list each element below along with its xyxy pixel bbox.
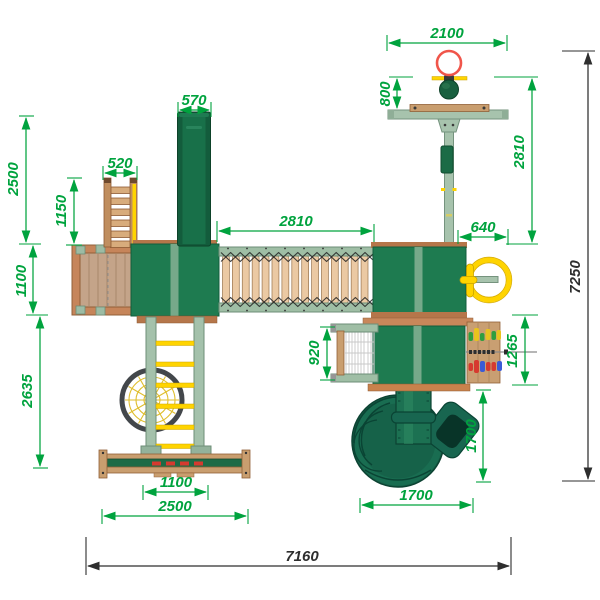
left-tower-roof bbox=[131, 240, 219, 323]
dim-bridge-span: 2810 bbox=[278, 213, 313, 230]
dim-net-span: 920 bbox=[306, 340, 323, 366]
climbing-net bbox=[331, 324, 378, 382]
upper-right-tower-roof bbox=[363, 242, 473, 326]
access-stairs bbox=[104, 178, 137, 248]
lower-right-tower-roof bbox=[373, 326, 465, 387]
beam-plank bbox=[410, 105, 489, 112]
lower-tower-floor-strip bbox=[368, 384, 470, 391]
dim-hoop-offset: 800 bbox=[377, 81, 394, 107]
dim-base-span: 2500 bbox=[157, 498, 192, 515]
dim-spiral-span-v: 1700 bbox=[463, 419, 480, 453]
stairs-handrail bbox=[133, 184, 137, 244]
dim-left-span-upper: 2500 bbox=[5, 162, 22, 197]
hoop-knob bbox=[440, 80, 459, 99]
dim-overall-width: 7160 bbox=[285, 548, 319, 565]
pole bbox=[445, 115, 454, 245]
dim-overall-height: 7250 bbox=[567, 260, 584, 294]
dim-deck-span: 1100 bbox=[13, 264, 30, 297]
straight-slide bbox=[178, 112, 211, 246]
dim-panel-span: 1265 bbox=[504, 334, 521, 368]
dim-swing-span: 2635 bbox=[19, 374, 36, 409]
dim-stairs-span: 1150 bbox=[53, 194, 70, 227]
plan-svg: 570 520 2100 800 2810 640 2810 2500 1100 bbox=[0, 0, 600, 600]
dim-spiral-span-h: 1700 bbox=[399, 487, 433, 504]
hoop-ring bbox=[437, 51, 461, 75]
dim-pole-span: 2810 bbox=[511, 135, 528, 170]
dim-slide-width: 570 bbox=[181, 92, 207, 109]
pole-handle bbox=[441, 146, 453, 173]
wooden-deck bbox=[72, 245, 131, 315]
rope-bridge bbox=[219, 247, 375, 312]
dim-base-inner-span: 1100 bbox=[160, 474, 193, 491]
dim-wheel-offset: 640 bbox=[470, 219, 496, 236]
dim-hoop-beam: 2100 bbox=[429, 25, 464, 42]
dim-stairs-width: 520 bbox=[107, 155, 133, 172]
plan-drawing: 570 520 2100 800 2810 640 2810 2500 1100 bbox=[0, 0, 600, 600]
